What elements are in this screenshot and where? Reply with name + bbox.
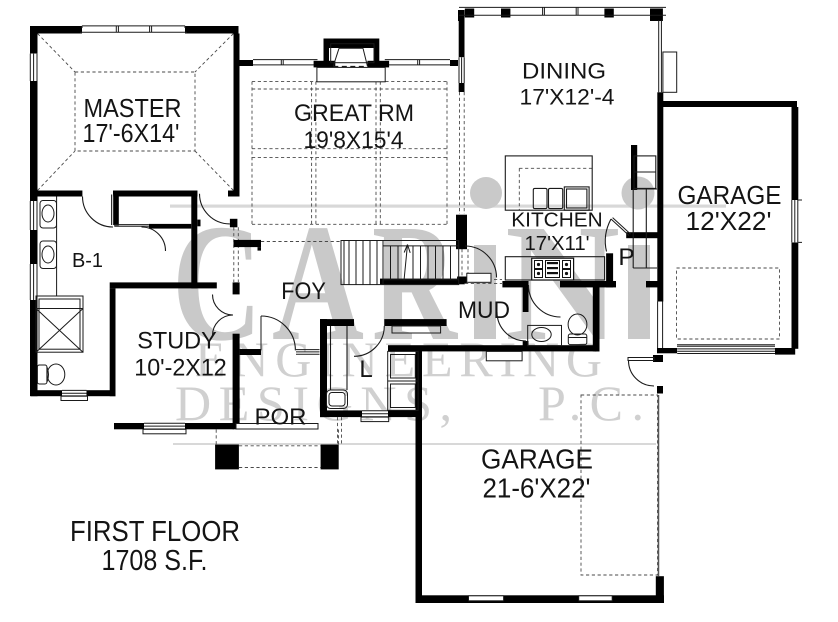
svg-text:P: P — [618, 244, 634, 271]
svg-text:KITCHEN: KITCHEN — [511, 210, 603, 232]
svg-text:STUDY: STUDY — [137, 327, 217, 354]
svg-text:GARAGE: GARAGE — [481, 444, 593, 475]
svg-text:FOY: FOY — [281, 278, 326, 305]
svg-text:FIRST FLOOR: FIRST FLOOR — [70, 516, 240, 548]
svg-text:P.C.: P.C. — [538, 375, 656, 431]
svg-text:1708 S.F.: 1708 S.F. — [102, 545, 208, 577]
svg-text:21-6'X22': 21-6'X22' — [483, 473, 591, 504]
svg-text:L: L — [359, 356, 372, 383]
svg-text:GREAT RM: GREAT RM — [294, 100, 414, 127]
svg-text:19'8X15'4: 19'8X15'4 — [304, 127, 404, 154]
svg-text:17'X11': 17'X11' — [525, 233, 590, 255]
svg-text:12'X22': 12'X22' — [686, 208, 772, 236]
svg-text:MUD: MUD — [458, 297, 510, 324]
svg-text:17'X12'-4: 17'X12'-4 — [520, 85, 615, 110]
svg-text:B-1: B-1 — [72, 250, 103, 272]
svg-text:DINING: DINING — [522, 58, 606, 83]
svg-text:GARAGE: GARAGE — [678, 182, 782, 210]
svg-text:POR: POR — [255, 404, 307, 430]
svg-text:10'-2X12: 10'-2X12 — [134, 354, 227, 381]
svg-text:17'-6X14': 17'-6X14' — [83, 118, 180, 148]
